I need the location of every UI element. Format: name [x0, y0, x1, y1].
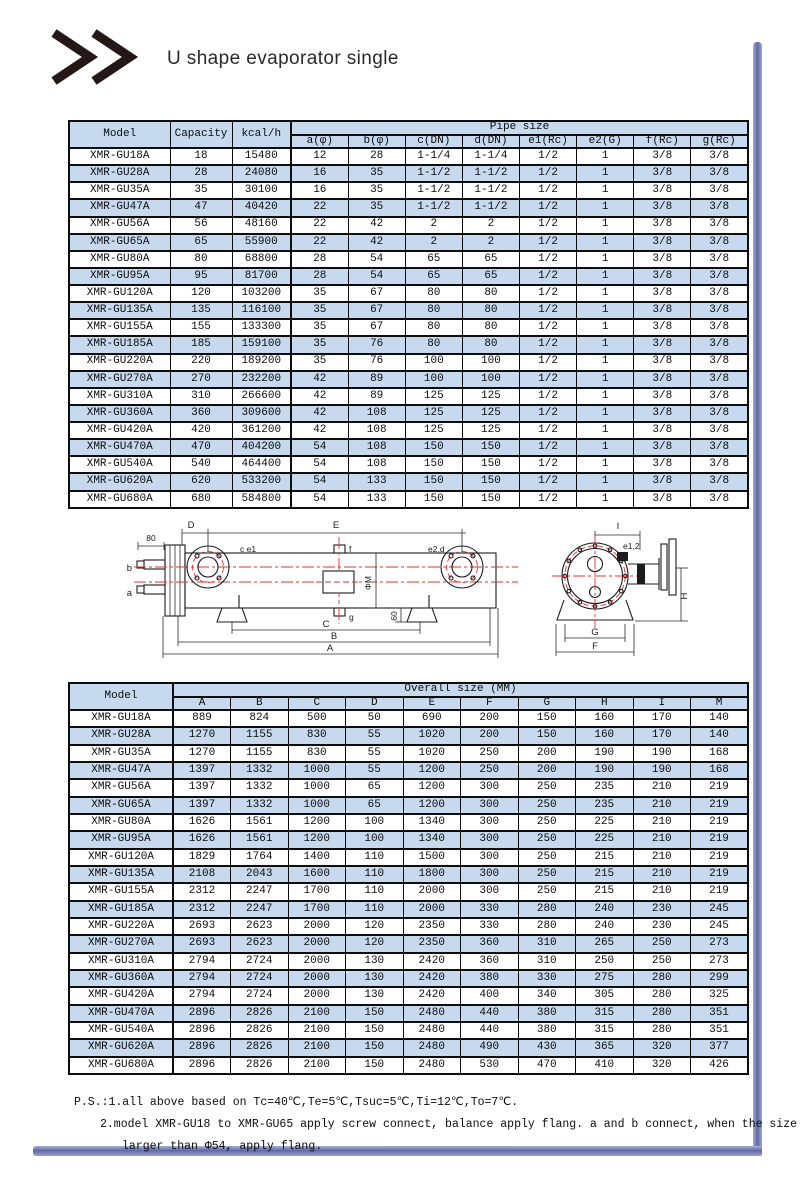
value-cell: 80: [405, 319, 462, 336]
value-cell: 2724: [231, 970, 289, 987]
value-cell: 3/8: [634, 422, 691, 439]
value-cell: 159100: [232, 336, 291, 353]
table-row: XMR-GU620A289628262100150248049043036532…: [69, 1039, 748, 1056]
value-cell: 1626: [173, 814, 231, 831]
value-cell: 190: [576, 745, 634, 762]
value-cell: 210: [633, 797, 691, 814]
value-cell: 3/8: [634, 217, 691, 234]
value-cell: 54: [291, 456, 348, 473]
value-cell: 160: [576, 727, 634, 744]
value-cell: 1764: [231, 849, 289, 866]
model-cell: XMR-GU18A: [69, 148, 170, 165]
value-cell: 2480: [403, 1022, 461, 1039]
value-cell: 2826: [231, 1039, 289, 1056]
value-cell: 2: [462, 217, 519, 234]
value-cell: 89: [348, 388, 405, 405]
value-cell: 3/8: [634, 405, 691, 422]
value-cell: 3/8: [691, 439, 748, 456]
value-cell: 28: [291, 251, 348, 268]
value-cell: 210: [633, 883, 691, 900]
value-cell: 80: [462, 302, 519, 319]
value-cell: 2623: [231, 935, 289, 952]
value-cell: 280: [633, 1022, 691, 1039]
value-cell: 310: [518, 953, 576, 970]
value-cell: 50: [346, 710, 404, 727]
model-cell: XMR-GU540A: [69, 456, 170, 473]
dim-label-e: E: [333, 520, 339, 531]
value-cell: 1: [577, 371, 634, 388]
model-cell: XMR-GU470A: [69, 439, 170, 456]
value-cell: 250: [518, 849, 576, 866]
value-cell: 3/8: [691, 285, 748, 302]
value-cell: 300: [461, 883, 519, 900]
value-cell: 120: [170, 285, 232, 302]
value-cell: 55: [346, 762, 404, 779]
value-cell: 1/2: [520, 336, 577, 353]
value-cell: 56: [170, 217, 232, 234]
table-row: XMR-GU270A27023220042891001001/213/83/8: [69, 371, 748, 388]
overall-subheader-7: G: [518, 697, 576, 711]
table-row: XMR-GU185A185159100357680801/213/83/8: [69, 336, 748, 353]
value-cell: 110: [346, 866, 404, 883]
value-cell: 42: [348, 234, 405, 251]
value-cell: 420: [170, 422, 232, 439]
model-cell: XMR-GU18A: [69, 710, 173, 727]
value-cell: 1-1/2: [405, 199, 462, 216]
value-cell: 1/2: [520, 473, 577, 490]
value-cell: 2794: [173, 970, 231, 987]
value-cell: 125: [462, 388, 519, 405]
value-cell: 100: [346, 814, 404, 831]
table-row: XMR-GU80A1626156112001001340300250225210…: [69, 814, 748, 831]
value-cell: 351: [691, 1005, 749, 1022]
value-cell: 65: [405, 268, 462, 285]
value-cell: 215: [576, 849, 634, 866]
value-cell: 1/2: [520, 422, 577, 439]
value-cell: 67: [348, 302, 405, 319]
value-cell: 1800: [403, 866, 461, 883]
value-cell: 230: [633, 918, 691, 935]
value-cell: 380: [518, 1005, 576, 1022]
value-cell: 2: [405, 234, 462, 251]
value-cell: 280: [518, 901, 576, 918]
value-cell: 490: [461, 1039, 519, 1056]
value-cell: 108: [348, 422, 405, 439]
model-cell: XMR-GU35A: [69, 745, 173, 762]
value-cell: 3/8: [691, 199, 748, 216]
value-cell: 2480: [403, 1005, 461, 1022]
model-cell: XMR-GU56A: [69, 779, 173, 796]
value-cell: 219: [691, 849, 749, 866]
value-cell: 232200: [232, 371, 291, 388]
value-cell: 275: [576, 970, 634, 987]
table-row: XMR-GU56A56481602242221/213/83/8: [69, 217, 748, 234]
value-cell: 1-1/2: [462, 182, 519, 199]
value-cell: 325: [691, 987, 749, 1004]
value-cell: 1000: [288, 797, 346, 814]
overall-subheader-9: I: [633, 697, 691, 711]
value-cell: 1: [577, 234, 634, 251]
value-cell: 35: [291, 354, 348, 371]
value-cell: 133: [348, 473, 405, 490]
value-cell: 680: [170, 491, 232, 508]
value-cell: 2000: [403, 883, 461, 900]
value-cell: 440: [461, 1022, 519, 1039]
value-cell: 3/8: [634, 285, 691, 302]
value-cell: 108: [348, 405, 405, 422]
value-cell: 340: [518, 987, 576, 1004]
value-cell: 150: [346, 1057, 404, 1074]
model-cell: XMR-GU185A: [69, 336, 170, 353]
value-cell: 55: [346, 727, 404, 744]
value-cell: 320: [633, 1039, 691, 1056]
value-cell: 140: [691, 727, 749, 744]
value-cell: 2693: [173, 918, 231, 935]
overall-subheader-10: M: [691, 697, 749, 711]
table-row: XMR-GU155A231222471700110200030025021521…: [69, 883, 748, 900]
pipe-subheader-7: f(Rc): [634, 135, 691, 149]
value-cell: 1: [577, 336, 634, 353]
model-cell: XMR-GU135A: [69, 866, 173, 883]
value-cell: 3/8: [691, 371, 748, 388]
value-cell: 2043: [231, 866, 289, 883]
value-cell: 1700: [288, 901, 346, 918]
value-cell: 1/2: [520, 182, 577, 199]
value-cell: 155: [170, 319, 232, 336]
value-cell: 2100: [288, 1039, 346, 1056]
value-cell: 1270: [173, 727, 231, 744]
value-cell: 3/8: [691, 319, 748, 336]
model-cell: XMR-GU420A: [69, 987, 173, 1004]
table-row: XMR-GU120A182917641400110150030025021521…: [69, 849, 748, 866]
value-cell: 35: [291, 285, 348, 302]
value-cell: 120: [346, 935, 404, 952]
value-cell: 1332: [231, 797, 289, 814]
value-cell: 30100: [232, 182, 291, 199]
value-cell: 1-1/2: [405, 165, 462, 182]
value-cell: 540: [170, 456, 232, 473]
value-cell: 1/2: [520, 302, 577, 319]
footnote-line-3: larger than Φ54, apply flang.: [122, 1136, 800, 1158]
value-cell: 2420: [403, 953, 461, 970]
model-cell: XMR-GU135A: [69, 302, 170, 319]
value-cell: 220: [170, 354, 232, 371]
value-cell: 54: [348, 268, 405, 285]
dim-label-80: 80: [146, 533, 156, 543]
value-cell: 3/8: [691, 302, 748, 319]
value-cell: 360: [461, 935, 519, 952]
value-cell: 120: [346, 918, 404, 935]
model-cell: XMR-GU95A: [69, 268, 170, 285]
value-cell: 170: [633, 710, 691, 727]
table-row: XMR-GU220A269326232000120235033028024023…: [69, 918, 748, 935]
model-cell: XMR-GU155A: [69, 883, 173, 900]
value-cell: 65: [405, 251, 462, 268]
value-cell: 1561: [231, 831, 289, 848]
value-cell: 12: [291, 148, 348, 165]
value-cell: 160: [576, 710, 634, 727]
model-cell: XMR-GU270A: [69, 935, 173, 952]
value-cell: 47: [170, 199, 232, 216]
value-cell: 1340: [403, 814, 461, 831]
value-cell: 219: [691, 831, 749, 848]
value-cell: 100: [405, 371, 462, 388]
value-cell: 2247: [231, 901, 289, 918]
value-cell: 1200: [288, 831, 346, 848]
value-cell: 1020: [403, 745, 461, 762]
value-cell: 2693: [173, 935, 231, 952]
value-cell: 1340: [403, 831, 461, 848]
value-cell: 2312: [173, 883, 231, 900]
value-cell: 1500: [403, 849, 461, 866]
value-cell: 35: [170, 182, 232, 199]
value-cell: 330: [461, 918, 519, 935]
pipe-subheader-8: g(Rc): [691, 135, 748, 149]
value-cell: 300: [461, 849, 519, 866]
value-cell: 380: [518, 1022, 576, 1039]
nozzle-label-g: g: [349, 612, 354, 622]
value-cell: 315: [576, 1022, 634, 1039]
value-cell: 300: [461, 797, 519, 814]
value-cell: 1332: [231, 779, 289, 796]
value-cell: 150: [405, 456, 462, 473]
model-cell: XMR-GU95A: [69, 831, 173, 848]
value-cell: 48160: [232, 217, 291, 234]
value-cell: 235: [576, 797, 634, 814]
value-cell: 3/8: [634, 268, 691, 285]
value-cell: 3/8: [634, 439, 691, 456]
table-row: XMR-GU120A120103200356780801/213/83/8: [69, 285, 748, 302]
pipe-subheader-2: b(φ): [348, 135, 405, 149]
value-cell: 300: [461, 866, 519, 883]
value-cell: 42: [291, 388, 348, 405]
value-cell: 18: [170, 148, 232, 165]
value-cell: 426: [691, 1057, 749, 1074]
value-cell: 219: [691, 797, 749, 814]
model-cell: XMR-GU360A: [69, 405, 170, 422]
value-cell: 430: [518, 1039, 576, 1056]
value-cell: 89: [348, 371, 405, 388]
value-cell: 410: [576, 1057, 634, 1074]
table-row: XMR-GU28A1270115583055102020015016017014…: [69, 727, 748, 744]
value-cell: 150: [346, 1039, 404, 1056]
value-cell: 3/8: [691, 473, 748, 490]
chevrons-icon: [46, 26, 146, 90]
value-cell: 1397: [173, 779, 231, 796]
pipe-subheader-4: d(DN): [462, 135, 519, 149]
value-cell: 240: [576, 918, 634, 935]
value-cell: 2350: [403, 918, 461, 935]
value-cell: 1: [577, 217, 634, 234]
value-cell: 377: [691, 1039, 749, 1056]
pipe-subheader-6: e2(G): [577, 135, 634, 149]
dim-label-d: D: [188, 520, 195, 531]
value-cell: 100: [346, 831, 404, 848]
value-cell: 2480: [403, 1057, 461, 1074]
value-cell: 42: [348, 217, 405, 234]
value-cell: 54: [291, 491, 348, 508]
table-row: XMR-GU155A155133300356780801/213/83/8: [69, 319, 748, 336]
value-cell: 2724: [231, 953, 289, 970]
value-cell: 1: [577, 268, 634, 285]
value-cell: 2794: [173, 953, 231, 970]
table-row: XMR-GU360A279427242000130242038033027528…: [69, 970, 748, 987]
value-cell: 305: [576, 987, 634, 1004]
value-cell: 150: [462, 439, 519, 456]
value-cell: 1: [577, 439, 634, 456]
value-cell: 2896: [173, 1057, 231, 1074]
value-cell: 3/8: [634, 182, 691, 199]
value-cell: 40420: [232, 199, 291, 216]
value-cell: 3/8: [634, 148, 691, 165]
value-cell: 108: [348, 456, 405, 473]
value-cell: 22: [291, 217, 348, 234]
value-cell: 80: [405, 285, 462, 302]
table-row: XMR-GU18A88982450050690200150160170140: [69, 710, 748, 727]
value-cell: 110: [346, 883, 404, 900]
value-cell: 300: [461, 831, 519, 848]
value-cell: 3/8: [634, 354, 691, 371]
value-cell: 1/2: [520, 165, 577, 182]
value-cell: 230: [633, 901, 691, 918]
value-cell: 65: [462, 268, 519, 285]
value-cell: 133: [348, 491, 405, 508]
value-cell: 889: [173, 710, 231, 727]
value-cell: 24080: [232, 165, 291, 182]
model-cell: XMR-GU35A: [69, 182, 170, 199]
value-cell: 400: [461, 987, 519, 1004]
value-cell: 1: [577, 388, 634, 405]
value-cell: 125: [405, 422, 462, 439]
value-cell: 3/8: [634, 251, 691, 268]
value-cell: 130: [346, 953, 404, 970]
value-cell: 125: [405, 405, 462, 422]
value-cell: 35: [291, 302, 348, 319]
value-cell: 103200: [232, 285, 291, 302]
dim-label-b: B: [331, 631, 337, 642]
value-cell: 54: [291, 439, 348, 456]
value-cell: 100: [405, 354, 462, 371]
value-cell: 65: [346, 797, 404, 814]
value-cell: 1200: [288, 814, 346, 831]
value-cell: 1: [577, 251, 634, 268]
value-cell: 250: [518, 866, 576, 883]
value-cell: 2000: [288, 918, 346, 935]
value-cell: 1561: [231, 814, 289, 831]
value-cell: 3/8: [691, 388, 748, 405]
value-cell: 830: [288, 745, 346, 762]
value-cell: 210: [633, 779, 691, 796]
value-cell: 1-1/2: [462, 165, 519, 182]
model-cell: XMR-GU680A: [69, 1057, 173, 1074]
value-cell: 320: [633, 1057, 691, 1074]
table-row: XMR-GU47A1397133210005512002502001901901…: [69, 762, 748, 779]
value-cell: 250: [518, 831, 576, 848]
table-row: XMR-GU95A1626156112001001340300250225210…: [69, 831, 748, 848]
value-cell: 150: [518, 727, 576, 744]
model-cell: XMR-GU620A: [69, 1039, 173, 1056]
overall-subheader-1: A: [173, 697, 231, 711]
value-cell: 280: [518, 918, 576, 935]
label-c-e1: c e1: [240, 544, 256, 554]
value-cell: 1: [577, 302, 634, 319]
value-cell: 2000: [288, 970, 346, 987]
value-cell: 150: [346, 1005, 404, 1022]
value-cell: 100: [462, 371, 519, 388]
value-cell: 1: [577, 148, 634, 165]
value-cell: 273: [691, 935, 749, 952]
value-cell: 210: [633, 866, 691, 883]
value-cell: 250: [461, 762, 519, 779]
value-cell: 65: [346, 779, 404, 796]
model-cell: XMR-GU47A: [69, 199, 170, 216]
value-cell: 80: [405, 302, 462, 319]
value-cell: 95: [170, 268, 232, 285]
value-cell: 361200: [232, 422, 291, 439]
page-border-right: [753, 42, 762, 1156]
value-cell: 150: [518, 710, 576, 727]
model-cell: XMR-GU56A: [69, 217, 170, 234]
value-cell: 76: [348, 336, 405, 353]
pipe-header-kcal: kcal/h: [232, 121, 291, 148]
dim-label-phiM: ΦM: [363, 576, 373, 590]
table-row: XMR-GU620A620533200541331501501/213/83/8: [69, 473, 748, 490]
table-row: XMR-GU420A279427242000130242040034030528…: [69, 987, 748, 1004]
value-cell: 210: [633, 849, 691, 866]
value-cell: 2108: [173, 866, 231, 883]
value-cell: 150: [405, 439, 462, 456]
value-cell: 200: [461, 727, 519, 744]
value-cell: 1: [577, 165, 634, 182]
value-cell: 1/2: [520, 371, 577, 388]
value-cell: 330: [518, 970, 576, 987]
value-cell: 1397: [173, 797, 231, 814]
value-cell: 1: [577, 354, 634, 371]
model-cell: XMR-GU470A: [69, 1005, 173, 1022]
value-cell: 280: [633, 987, 691, 1004]
value-cell: 1/2: [520, 439, 577, 456]
dim-label-h: H: [679, 592, 690, 599]
value-cell: 108: [348, 439, 405, 456]
model-cell: XMR-GU310A: [69, 388, 170, 405]
value-cell: 190: [633, 762, 691, 779]
value-cell: 130: [346, 970, 404, 987]
table-row: XMR-GU135A135116100356780801/213/83/8: [69, 302, 748, 319]
value-cell: 273: [691, 953, 749, 970]
value-cell: 80: [462, 319, 519, 336]
pipe-header-capacity: Capacity: [170, 121, 232, 148]
value-cell: 1155: [231, 745, 289, 762]
value-cell: 3/8: [691, 268, 748, 285]
value-cell: 280: [633, 970, 691, 987]
value-cell: 1600: [288, 866, 346, 883]
value-cell: 67: [348, 319, 405, 336]
value-cell: 54: [291, 473, 348, 490]
value-cell: 240: [576, 901, 634, 918]
value-cell: 1: [577, 473, 634, 490]
value-cell: 110: [346, 849, 404, 866]
value-cell: 380: [461, 970, 519, 987]
table-row: XMR-GU18A181548012281-1/41-1/41/213/83/8: [69, 148, 748, 165]
value-cell: 1400: [288, 849, 346, 866]
model-cell: XMR-GU47A: [69, 762, 173, 779]
value-cell: 3/8: [634, 336, 691, 353]
table-row: XMR-GU270A269326232000120235036031026525…: [69, 935, 748, 952]
value-cell: 299: [691, 970, 749, 987]
value-cell: 2420: [403, 987, 461, 1004]
value-cell: 150: [462, 456, 519, 473]
table-row: XMR-GU310A279427242000130242036031025025…: [69, 953, 748, 970]
